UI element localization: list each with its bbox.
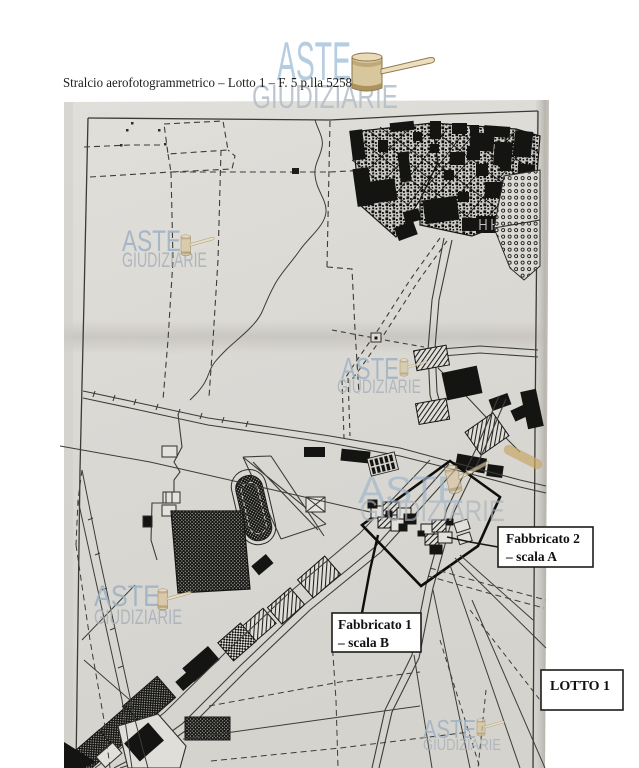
svg-text:GIUDIZIARIE: GIUDIZIARIE [94,606,182,629]
svg-text:GIUDIZIARIE: GIUDIZIARIE [360,495,505,528]
svg-text:Fabbricato 1: Fabbricato 1 [338,617,412,632]
svg-text:– scala B: – scala B [337,635,389,650]
svg-text:GIUDIZIARIE: GIUDIZIARIE [122,249,207,272]
svg-text:GIUDIZIARIE: GIUDIZIARIE [423,737,501,754]
svg-text:Fabbricato 2: Fabbricato 2 [506,531,580,546]
svg-text:GIUDIZIARIE: GIUDIZIARIE [337,377,421,398]
svg-text:LOTTO 1: LOTTO 1 [550,679,610,694]
svg-text:– scala A: – scala A [505,549,557,564]
svg-text:Stralcio aerofotogrammetrico –: Stralcio aerofotogrammetrico – Lotto 1 –… [63,76,352,91]
